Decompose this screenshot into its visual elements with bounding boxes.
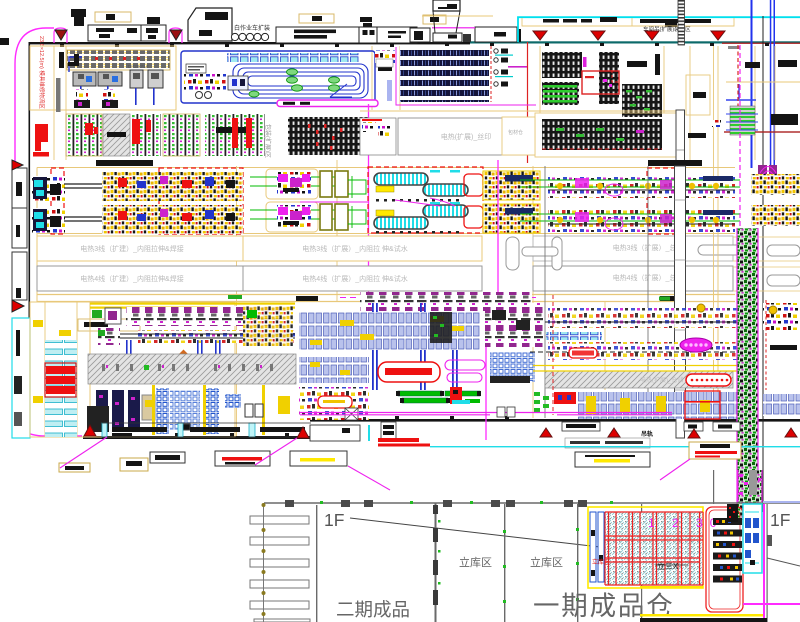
svg-text:电热4线（扩展）_内阻拉 伸&试水: 电热4线（扩展）_内阻拉 伸&试水 <box>302 274 407 283</box>
svg-text:二期成品: 二期成品 <box>336 599 410 620</box>
svg-text:电热3线（扩建）_内阻拉伸&焊接: 电热3线（扩建）_内阻拉伸&焊接 <box>80 244 183 253</box>
svg-text:电热4线（扩建）_内阻拉伸&焊接: 电热4线（扩建）_内阻拉伸&焊接 <box>80 274 183 283</box>
svg-text:立三X: 立三X <box>657 561 679 571</box>
svg-text:1F: 1F <box>770 510 790 530</box>
svg-text:电热3线（扩展）_内阻拉 伸&试水: 电热3线（扩展）_内阻拉 伸&试水 <box>302 244 407 253</box>
svg-text:立库区: 立库区 <box>459 555 492 569</box>
svg-text:吊轨: 吊轨 <box>641 430 653 438</box>
svg-text:包装(扩展)区: 包装(扩展)区 <box>264 124 272 158</box>
svg-text:立库区: 立库区 <box>530 555 563 569</box>
svg-text:DI*280*L8: DI*280*L8 <box>128 64 149 69</box>
svg-text:立库区: 立库区 <box>592 558 610 566</box>
svg-text:白作业车扩装: 白作业车扩装 <box>234 24 270 32</box>
svg-text:1 2 30: 1 2 30 <box>648 516 723 530</box>
svg-text:包材仓: 包材仓 <box>508 129 523 136</box>
svg-text:电热(扩展)_仓储: 电热(扩展)_仓储 <box>640 376 683 384</box>
svg-text:1F: 1F <box>324 510 344 530</box>
svg-text:23.6×12.5(m) 模具维修物流区: 23.6×12.5(m) 模具维修物流区 <box>38 36 46 109</box>
svg-text:电热(扩展)_丝印: 电热(扩展)_丝印 <box>441 132 492 141</box>
